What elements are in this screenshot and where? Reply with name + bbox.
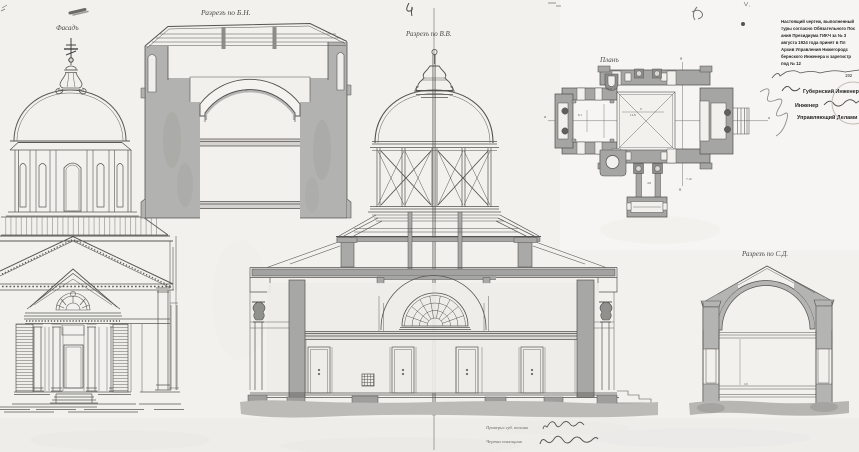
svg-text:под № 12: под № 12	[781, 61, 801, 66]
svg-text:Разрезъ по С.Д.: Разрезъ по С.Д.	[741, 250, 788, 258]
svg-text:августа 1924 года принят в Пл: августа 1924 года принят в Пл	[781, 40, 846, 45]
svg-text:Управляющий Делами: Управляющий Делами	[797, 114, 857, 121]
svg-text:12.8: 12.8	[630, 113, 636, 117]
svg-text:Фасадъ: Фасадъ	[56, 24, 79, 32]
svg-text:Проверил губ. техник: Проверил губ. техник	[485, 425, 529, 430]
svg-text:а: а	[768, 115, 770, 120]
svg-text:8.1: 8.1	[578, 113, 582, 117]
svg-text:Инженер: Инженер	[795, 103, 819, 109]
svg-text:Разрезъ по Б.Н.: Разрезъ по Б.Н.	[200, 8, 251, 17]
svg-text:Планъ: Планъ	[599, 56, 619, 64]
svg-text:а: а	[544, 114, 546, 119]
svg-text:7.10: 7.10	[686, 177, 692, 181]
svg-text:Чертил помощник: Чертил помощник	[486, 439, 523, 444]
svg-text:10.8: 10.8	[606, 87, 612, 91]
svg-text:туры согласно Обязательного По: туры согласно Обязательного Пос	[781, 26, 856, 31]
svg-text:10: 10	[744, 382, 748, 386]
svg-text:Губернский Инженер: Губернский Инженер	[803, 88, 859, 95]
svg-text:бернского Инженера и зарегистр: бернского Инженера и зарегистр	[781, 54, 851, 59]
svg-text:4.8: 4.8	[647, 181, 651, 185]
svg-text:192: 192	[845, 73, 853, 78]
svg-text:Архив Управления Нижегородс: Архив Управления Нижегородс	[781, 47, 849, 52]
svg-text:ания Президиума ГИКЧ за № 3: ания Президиума ГИКЧ за № 3	[781, 33, 847, 38]
svg-text:Разрезъ по В.В.: Разрезъ по В.В.	[405, 30, 452, 38]
svg-text:Настоящий чертеж, выполненный: Настоящий чертеж, выполненный	[781, 19, 854, 24]
